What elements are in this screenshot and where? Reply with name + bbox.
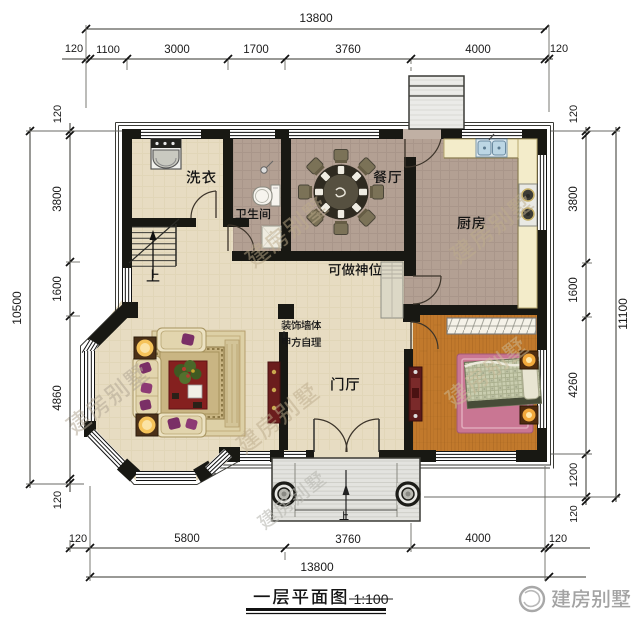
svg-text:1600: 1600 [52, 276, 64, 302]
svg-text:120: 120 [52, 105, 64, 123]
svg-text:1600: 1600 [568, 277, 580, 303]
svg-text:4000: 4000 [465, 44, 491, 56]
svg-text:4860: 4860 [52, 385, 64, 411]
svg-text:120: 120 [52, 491, 64, 509]
svg-text:3800: 3800 [568, 186, 580, 212]
svg-text:4000: 4000 [465, 533, 491, 545]
svg-text:1700: 1700 [243, 44, 269, 56]
svg-text:120: 120 [549, 533, 567, 545]
svg-text:3800: 3800 [52, 186, 64, 212]
svg-text:13800: 13800 [299, 11, 333, 25]
svg-text:1200: 1200 [568, 463, 580, 487]
svg-text:3760: 3760 [335, 44, 361, 56]
svg-text:120: 120 [568, 505, 580, 523]
svg-text:120: 120 [69, 533, 87, 545]
svg-text:3000: 3000 [164, 44, 190, 56]
svg-text:120: 120 [550, 43, 568, 55]
svg-text:1100: 1100 [96, 44, 120, 56]
svg-text:120: 120 [65, 43, 83, 55]
svg-text:13800: 13800 [300, 560, 334, 574]
svg-text:10500: 10500 [10, 291, 24, 325]
svg-text:11100: 11100 [616, 298, 630, 330]
svg-text:4260: 4260 [568, 372, 580, 398]
svg-text:120: 120 [568, 105, 580, 123]
svg-text:3760: 3760 [335, 534, 361, 546]
svg-text:5800: 5800 [174, 533, 200, 545]
